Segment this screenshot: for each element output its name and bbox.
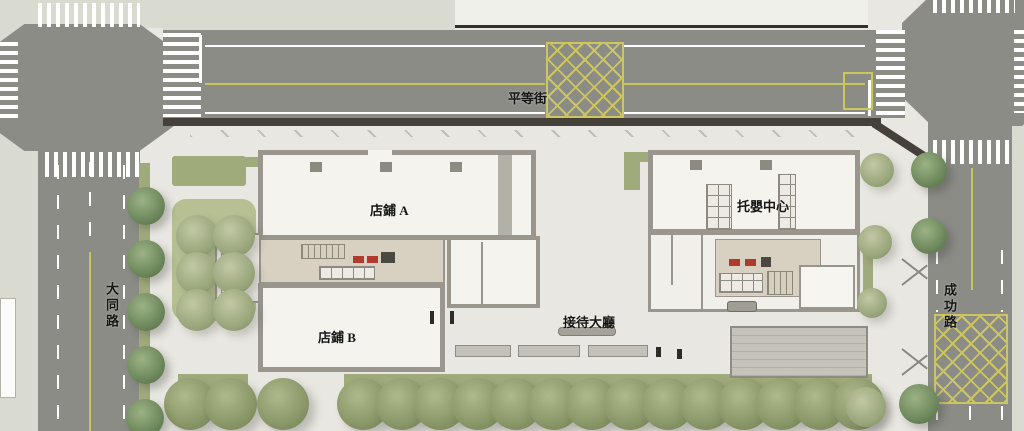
building-block-north bbox=[455, 0, 868, 28]
center-line-yellow bbox=[971, 168, 973, 290]
parked-car bbox=[727, 301, 757, 312]
lane-dash-line bbox=[936, 406, 938, 431]
service-shaft bbox=[498, 155, 512, 235]
center-dash-white bbox=[89, 162, 91, 248]
crib-grid bbox=[706, 184, 732, 230]
site-tree-east bbox=[846, 387, 886, 427]
crosswalk-chenggong bbox=[933, 140, 1013, 164]
shaft-box bbox=[761, 257, 771, 267]
crosswalk-ne-right bbox=[1014, 30, 1024, 113]
intersection-northeast bbox=[902, 0, 1024, 126]
low-wall bbox=[455, 345, 511, 357]
lawn-strip-west bbox=[139, 163, 150, 431]
ramp-hatch bbox=[221, 271, 239, 295]
curb-north bbox=[163, 118, 881, 126]
lane-dash-line bbox=[936, 250, 938, 312]
site-tree-east bbox=[860, 153, 894, 187]
street-label-datong: 大同路 bbox=[102, 282, 121, 330]
core-annex-west bbox=[215, 233, 261, 303]
core-shop-block bbox=[259, 238, 445, 284]
planting-strip bbox=[172, 156, 246, 186]
street-label-pingdeng: 平等街 bbox=[508, 88, 547, 107]
lane-dash-line bbox=[969, 406, 971, 431]
center-line-yellow bbox=[205, 83, 545, 85]
crosswalk-pingdeng-west bbox=[163, 33, 201, 117]
label-shop-a: 店鋪 A bbox=[370, 200, 409, 219]
lane-dash-line bbox=[1001, 250, 1003, 312]
partition-wall bbox=[701, 235, 703, 309]
stair bbox=[301, 244, 345, 259]
stair bbox=[767, 271, 793, 295]
fixture-grid bbox=[719, 273, 763, 293]
core-daycare-block bbox=[648, 232, 860, 312]
sidewalk-top-mid bbox=[163, 0, 455, 30]
link-corridor-block bbox=[447, 236, 540, 308]
room-white bbox=[799, 265, 855, 309]
wall-pilaster bbox=[760, 160, 772, 170]
south-wing-ramp bbox=[730, 326, 868, 378]
planting-sliver-east bbox=[863, 232, 873, 302]
site-plan: 平等街 大同路 成功路 店鋪 A 店鋪 B 接待大廳 托嬰中心 bbox=[0, 0, 1024, 431]
door-jamb bbox=[450, 311, 454, 324]
stop-line bbox=[199, 35, 202, 83]
keep-clear-hatch-north bbox=[546, 42, 624, 118]
bollard bbox=[656, 347, 661, 357]
low-wall bbox=[588, 345, 648, 357]
elevator bbox=[353, 256, 364, 263]
street-label-chenggong: 成功路 bbox=[940, 283, 959, 331]
wall-pilaster bbox=[310, 162, 322, 172]
low-wall bbox=[518, 345, 580, 357]
label-daycare-center: 托嬰中心 bbox=[737, 196, 789, 215]
sidewalk-east bbox=[1012, 120, 1024, 431]
paving-joints bbox=[190, 130, 880, 137]
lane-edge-line bbox=[205, 45, 545, 47]
building-block-west bbox=[0, 298, 16, 398]
crosswalk-ne-top bbox=[933, 0, 1015, 13]
lane-edge-line bbox=[623, 112, 865, 114]
center-line-yellow bbox=[89, 252, 91, 431]
bollard bbox=[677, 349, 682, 359]
fixture-grid bbox=[319, 266, 375, 280]
building-daycare bbox=[648, 150, 860, 234]
lane-edge-line bbox=[623, 45, 865, 47]
label-shop-b: 店鋪 B bbox=[318, 327, 356, 346]
shaft-box bbox=[381, 252, 395, 263]
crosswalk-nw-top bbox=[38, 3, 140, 27]
street-tree-row-south bbox=[257, 378, 309, 430]
building-shop-a bbox=[258, 150, 536, 240]
lane-dash-line bbox=[123, 165, 125, 431]
elevator bbox=[367, 256, 378, 263]
intersection-northwest bbox=[0, 24, 178, 151]
elevator bbox=[729, 259, 740, 266]
door-jamb bbox=[430, 311, 434, 324]
crosswalk-pingdeng-east bbox=[876, 30, 905, 116]
wall-pilaster bbox=[450, 162, 462, 172]
wall-pilaster bbox=[690, 160, 702, 170]
entrance-notch bbox=[368, 150, 392, 157]
lawn-strip-south bbox=[178, 374, 248, 392]
crosswalk-nw-bottom bbox=[45, 152, 143, 177]
wall-pilaster bbox=[380, 162, 392, 172]
partition-wall bbox=[671, 235, 673, 285]
curb-diagonal bbox=[872, 120, 928, 160]
elevator bbox=[745, 259, 756, 266]
lane-dash-line bbox=[57, 165, 59, 431]
partition-wall bbox=[481, 242, 483, 304]
lane-edge-line bbox=[205, 112, 545, 114]
center-line-yellow bbox=[623, 83, 865, 85]
ramp-hatch bbox=[221, 241, 239, 265]
lane-dash-line bbox=[1001, 406, 1003, 431]
label-reception-hall: 接待大廳 bbox=[563, 312, 615, 331]
waiting-box-marking bbox=[843, 72, 873, 110]
crosswalk-nw-left bbox=[0, 42, 18, 118]
